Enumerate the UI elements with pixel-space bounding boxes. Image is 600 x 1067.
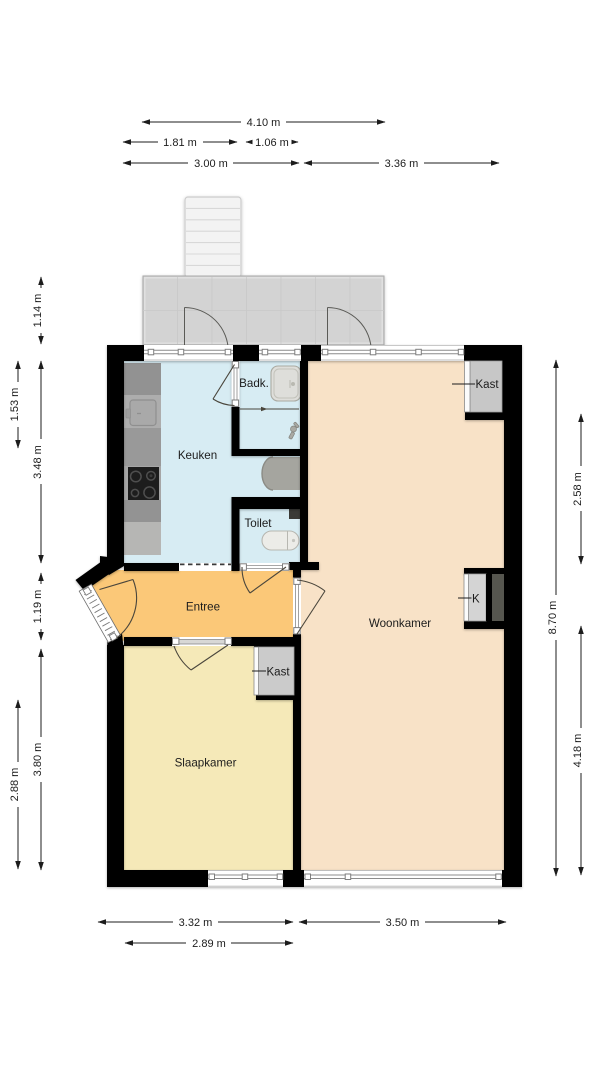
svg-text:Entree: Entree: [186, 600, 220, 613]
svg-text:1.81 m: 1.81 m: [163, 137, 197, 149]
svg-text:1.53 m: 1.53 m: [9, 388, 21, 422]
svg-text:4.10 m: 4.10 m: [247, 117, 281, 129]
svg-text:2.89 m: 2.89 m: [192, 938, 226, 950]
svg-text:3.48 m: 3.48 m: [32, 445, 44, 479]
svg-text:2.88 m: 2.88 m: [9, 768, 21, 802]
svg-text:3.00 m: 3.00 m: [194, 158, 228, 170]
svg-text:Kast: Kast: [476, 379, 500, 391]
svg-text:Kast: Kast: [267, 666, 291, 678]
svg-text:Woonkamer: Woonkamer: [369, 617, 431, 630]
svg-text:1.14 m: 1.14 m: [32, 294, 44, 328]
svg-text:Slaapkamer: Slaapkamer: [175, 757, 237, 770]
svg-text:1.19 m: 1.19 m: [32, 590, 44, 624]
svg-text:3.50 m: 3.50 m: [386, 917, 420, 929]
svg-text:3.32 m: 3.32 m: [179, 917, 213, 929]
svg-text:3.80 m: 3.80 m: [32, 743, 44, 777]
svg-text:K: K: [472, 593, 480, 605]
svg-text:Toilet: Toilet: [244, 517, 272, 530]
svg-text:2.58 m: 2.58 m: [572, 472, 584, 506]
svg-text:8.70 m: 8.70 m: [547, 601, 559, 635]
svg-text:Keuken: Keuken: [178, 449, 217, 462]
svg-text:1.06 m: 1.06 m: [255, 137, 289, 149]
svg-text:Badk.: Badk.: [239, 377, 269, 390]
svg-text:4.18 m: 4.18 m: [572, 734, 584, 768]
svg-text:3.36 m: 3.36 m: [385, 158, 419, 170]
